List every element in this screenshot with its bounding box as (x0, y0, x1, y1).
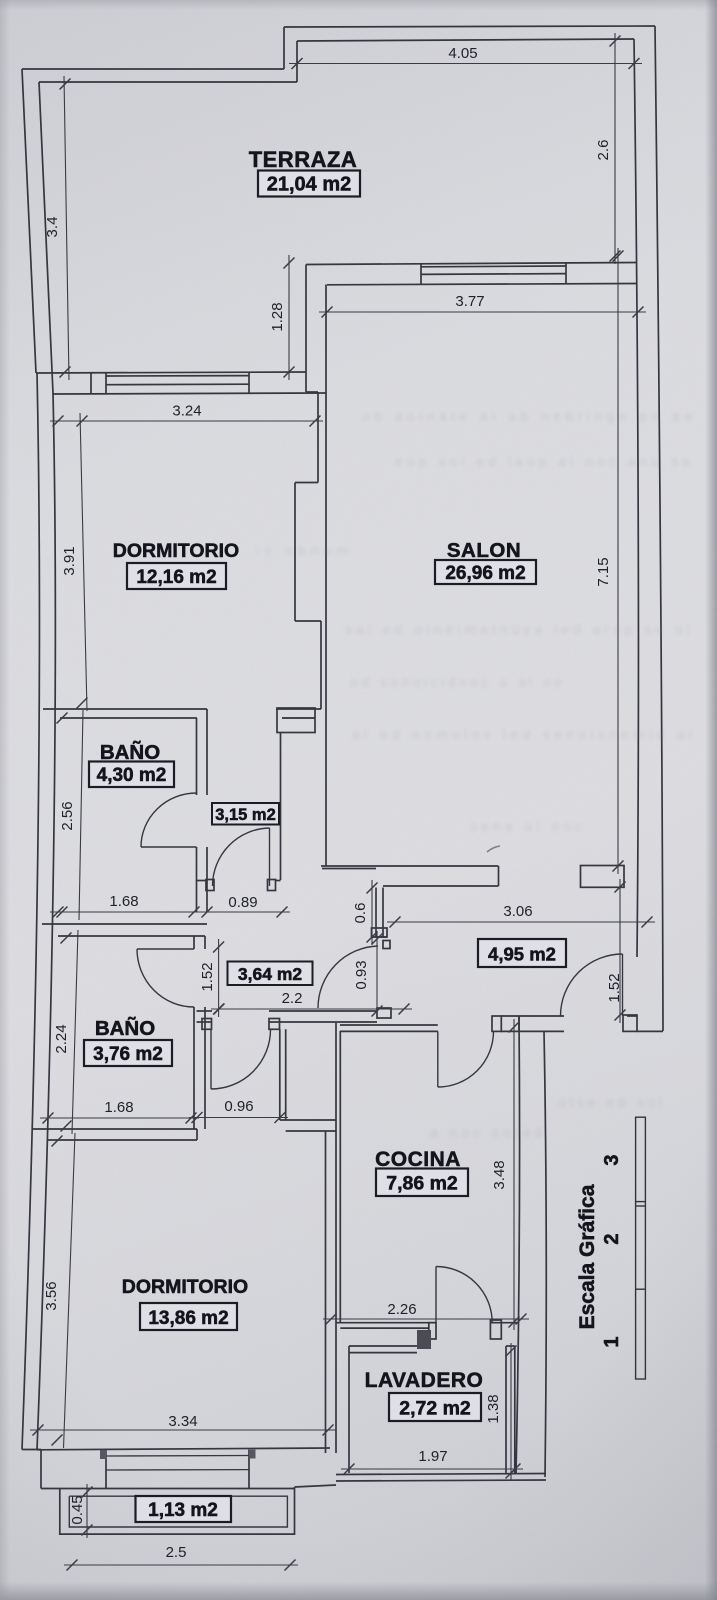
svg-text:2.24: 2.24 (53, 1024, 70, 1053)
svg-text:2.6: 2.6 (595, 140, 612, 161)
svg-text:0.45: 0.45 (69, 1495, 86, 1524)
svg-text:0.96: 0.96 (224, 1098, 253, 1115)
svg-text:DORMITORIO: DORMITORIO (113, 540, 239, 562)
svg-text:0.6: 0.6 (352, 903, 369, 924)
svg-text:0.89: 0.89 (228, 894, 257, 911)
svg-text:SALON: SALON (447, 539, 521, 562)
svg-text:1.28: 1.28 (269, 302, 286, 331)
svg-text:3.06: 3.06 (503, 903, 532, 920)
svg-text:12,16 m2: 12,16 m2 (136, 567, 216, 588)
svg-text:3.24: 3.24 (172, 403, 201, 420)
svg-text:eup sol ed laup al noc anu se: eup sol ed laup al noc anu se (395, 453, 690, 469)
svg-text:1,13 m2: 1,13 m2 (148, 1500, 218, 1521)
svg-text:3.48: 3.48 (491, 1160, 508, 1189)
svg-text:ob aoinate al ab nebringe po a: ob aoinate al ab nebringe po ae (362, 408, 692, 424)
svg-text:26,96 m2: 26,96 m2 (445, 563, 525, 584)
svg-text:3.4: 3.4 (44, 217, 61, 238)
svg-text:3.77: 3.77 (455, 293, 484, 310)
svg-text:Escala Gráfica: Escala Gráfica (576, 1184, 599, 1329)
svg-text:3: 3 (601, 1154, 623, 1165)
svg-text:1.52: 1.52 (199, 962, 216, 991)
svg-text:4,30 m2: 4,30 m2 (97, 765, 167, 786)
svg-text:2,72 m2: 2,72 m2 (399, 1398, 471, 1420)
svg-text:13,86 m2: 13,86 m2 (148, 1308, 228, 1329)
svg-text:2.5: 2.5 (166, 1544, 187, 1561)
svg-text:2.56: 2.56 (59, 801, 76, 830)
svg-text:7,86 m2: 7,86 m2 (386, 1173, 458, 1195)
svg-text:21,04 m2: 21,04 m2 (267, 174, 352, 196)
svg-text:1.38: 1.38 (485, 1394, 502, 1423)
svg-text:3.56: 3.56 (43, 1281, 60, 1310)
svg-text:sena al noc: sena al noc (470, 818, 582, 834)
svg-text:2: 2 (601, 1233, 623, 1244)
svg-text:LAVADERO: LAVADERO (365, 1369, 484, 1392)
svg-text:7.15: 7.15 (595, 557, 612, 586)
svg-text:DORMITORIO: DORMITORIO (122, 1276, 248, 1298)
svg-text:3,15 m2: 3,15 m2 (215, 806, 276, 824)
svg-text:1.97: 1.97 (418, 1448, 447, 1465)
svg-text:1.68: 1.68 (109, 893, 138, 910)
svg-text:2.2: 2.2 (282, 990, 303, 1007)
svg-text:BAÑO: BAÑO (95, 1017, 155, 1040)
svg-text:3.91: 3.91 (61, 546, 78, 575)
svg-text:1.52: 1.52 (606, 973, 623, 1002)
svg-text:3,76 m2: 3,76 m2 (93, 1044, 163, 1065)
svg-text:0.93: 0.93 (353, 960, 370, 989)
svg-text:2.26: 2.26 (387, 1301, 416, 1318)
svg-text:sal ed otneimatnuya led arap s: sal ed otneimatnuya led arap se ol (345, 621, 690, 637)
svg-text:4.05: 4.05 (448, 45, 477, 62)
svg-text:1.68: 1.68 (104, 1099, 133, 1116)
svg-text:4,95 m2: 4,95 m2 (488, 944, 556, 965)
svg-text:TERRAZA: TERRAZA (249, 147, 358, 172)
svg-text:1: 1 (601, 1336, 623, 1347)
svg-text:al ed nemulov led senoisnemid: al ed nemulov led senoisnemid al (352, 726, 692, 742)
svg-text:3.34: 3.34 (168, 1413, 197, 1430)
svg-text:3,64 m2: 3,64 m2 (238, 964, 302, 984)
